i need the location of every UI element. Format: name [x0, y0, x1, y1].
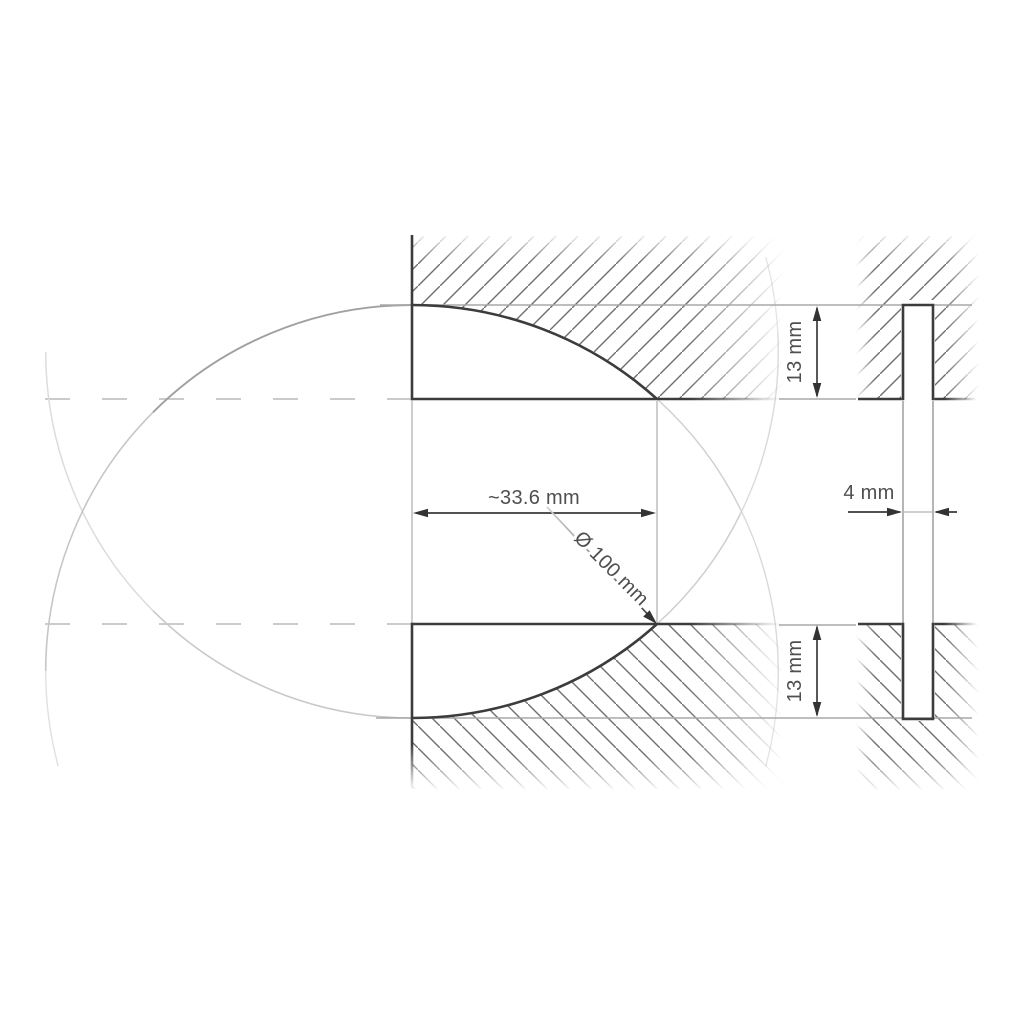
gap-bottom-arrow-down-icon [813, 702, 822, 717]
diameter-dimension-label: Ø 100 mm [570, 527, 653, 610]
construction-circle-lower-right-arc [657, 399, 742, 512]
cross-section-drawing: ~33.6 mm Ø 100 mm 13 mm 13 mm 4 mm [0, 0, 1024, 1024]
mold-block-bottom-left-hatch [413, 624, 785, 789]
gap-bottom-arrow-up-icon [813, 625, 822, 640]
construction-circle-upper-bottom-arc [153, 611, 412, 718]
gap-bottom-dimension-label: 13 mm [784, 640, 806, 703]
thickness-arrow-right-icon [887, 508, 902, 517]
width-dimension-label: ~33.6 mm [488, 487, 580, 509]
mount-block-top-right-hatch [856, 236, 980, 400]
construction-circle-lower-top-arc [153, 305, 412, 412]
centerlines [45, 399, 410, 624]
gap-top-arrow-up-icon [813, 306, 822, 321]
mold-block-top-left-hatch [413, 236, 785, 399]
thickness-dimension-label: 4 mm [843, 482, 894, 504]
construction-circle-upper-right-arc [657, 512, 742, 625]
construction-circle-lower-fadeout-arc [46, 671, 59, 766]
gap-top-arrow-down-icon [813, 383, 822, 398]
thickness-arrow-left-icon [934, 508, 949, 517]
width-arrow-left-icon [413, 509, 428, 518]
mount-block-bottom-right-hatch [856, 625, 980, 790]
width-arrow-right-icon [641, 509, 656, 518]
gap-top-dimension-label: 13 mm [784, 321, 806, 384]
technical-drawing-canvas: ~33.6 mm Ø 100 mm 13 mm 13 mm 4 mm [0, 0, 1024, 1024]
